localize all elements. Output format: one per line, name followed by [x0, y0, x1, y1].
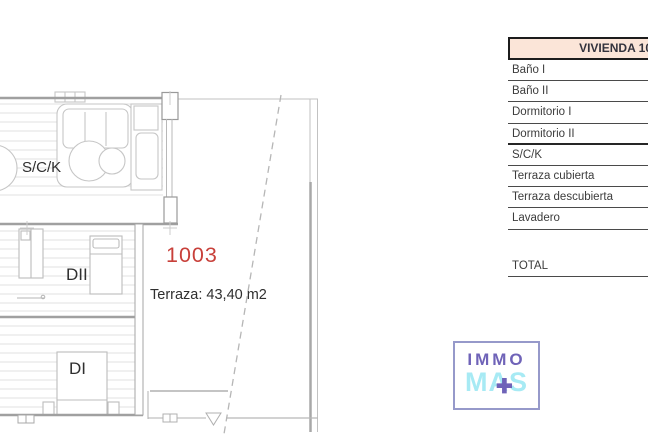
table-row-dormitorio1: Dormitorio I — [508, 102, 648, 123]
listing-sheet: { "plan": { "labels": { "living_kitchen"… — [0, 0, 648, 439]
table-row-terraza-descubierta: Terraza descubierta — [508, 187, 648, 208]
immomas-logo: IMMO MAS ✚ — [453, 341, 540, 410]
table-row-lavadero: Lavadero — [508, 208, 648, 229]
kitchen-appliance — [134, 106, 158, 130]
table-row-dormitorio2: Dormitorio II — [508, 124, 648, 145]
terrace-boundary-dashed — [224, 95, 281, 434]
bed-dii-pillow — [93, 239, 119, 248]
plus-icon: ✚ — [496, 377, 514, 397]
table-rows: Baño I Baño II Dormitorio I Dormitorio I… — [508, 60, 648, 230]
room-label-di: DI — [69, 359, 86, 378]
wardrobe-drawer — [21, 231, 30, 240]
room-label-dii: DII — [66, 265, 88, 284]
window-glazing — [167, 119, 173, 201]
nightstand-left — [43, 402, 54, 415]
unit-number-label: 1003 — [166, 243, 218, 267]
terrace-downspout — [206, 413, 221, 425]
wall-right-double — [135, 224, 143, 415]
table-header: VIVIENDA 10 — [508, 37, 648, 60]
unit-spec-table: VIVIENDA 10 Baño I Baño II Dormitorio I … — [508, 0, 648, 300]
floor-plan: S/C/K DII DI 1003 Terraza: 43,40 m2 — [0, 88, 340, 439]
kitchen-sink — [136, 133, 158, 179]
table-total-row: TOTAL — [508, 256, 648, 277]
dining-table — [0, 145, 17, 191]
table-row-terraza-cubierta: Terraza cubierta — [508, 166, 648, 187]
terrace-area-label: Terraza: 43,40 m2 — [150, 287, 267, 303]
bedroom2-furniture — [19, 229, 122, 294]
pillar-bottom — [164, 197, 177, 223]
nightstand-right — [108, 402, 119, 415]
logo-line2: MAS ✚ — [455, 367, 538, 398]
table-row-bano2: Baño II — [508, 81, 648, 102]
side-table — [99, 148, 125, 174]
table-row-bano1: Baño I — [508, 60, 648, 81]
table-row-sck: S/C/K — [508, 145, 648, 166]
room-label-sck: S/C/K — [22, 159, 61, 176]
table-header-label: VIVIENDA 10 — [579, 41, 648, 55]
